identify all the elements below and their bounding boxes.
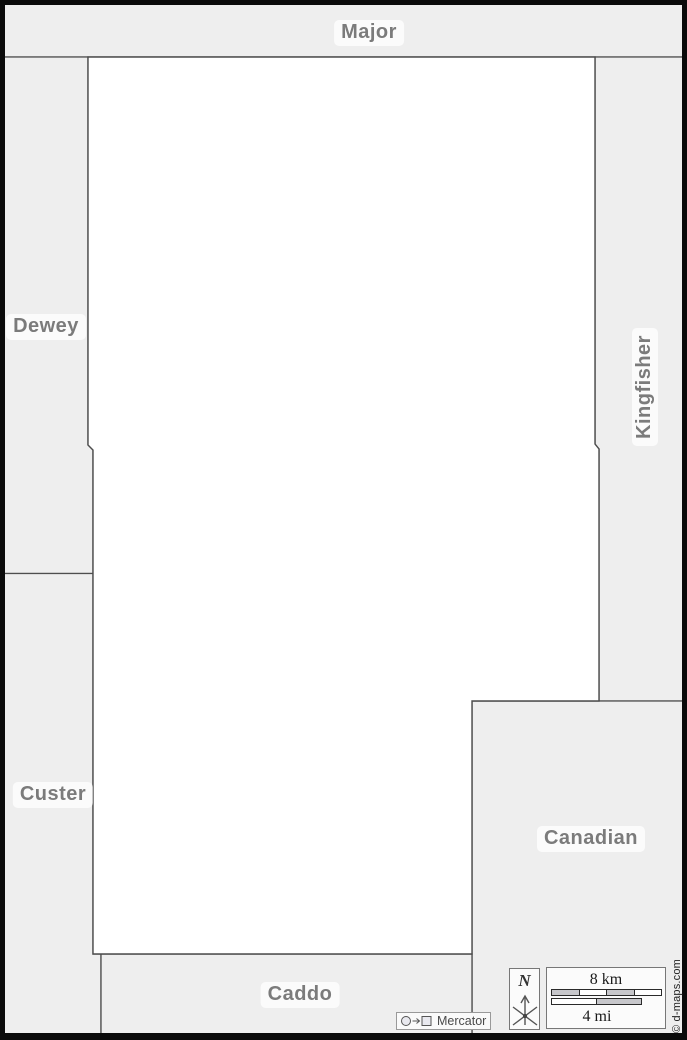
map-canvas [0,0,687,1040]
compass: N [509,968,540,1030]
county-map: Major Dewey Kingfisher Custer Canadian C… [0,0,687,1040]
compass-rose-icon [511,991,539,1027]
projection-icon [400,1015,434,1027]
label-caddo: Caddo [261,982,340,1008]
scale-bar: 8 km 4 mi [546,967,666,1029]
projection-label: Mercator [437,1014,486,1028]
compass-north-label: N [510,972,539,991]
label-major: Major [334,20,404,46]
copyright-credit: © d-maps.com [671,959,683,1033]
projection-note: Mercator [396,1012,491,1030]
scale-mi-label: 4 mi [583,1008,612,1026]
scale-mi-bar [551,998,642,1005]
label-dewey: Dewey [6,314,86,340]
scale-km-bar [551,989,662,996]
label-canadian: Canadian [537,826,645,852]
label-custer: Custer [13,782,93,808]
scale-km-label: 8 km [590,971,622,989]
label-kingfisher: Kingfisher [632,328,658,446]
